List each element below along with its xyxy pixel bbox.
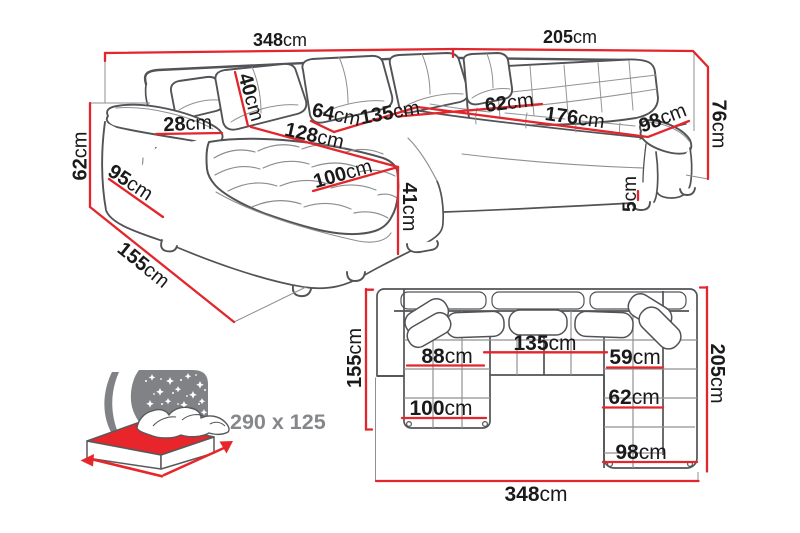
svg-text:76cm: 76cm (708, 100, 730, 149)
svg-text:205cm: 205cm (706, 343, 728, 403)
svg-text:100cm: 100cm (409, 397, 472, 420)
svg-text:98cm: 98cm (615, 441, 666, 464)
svg-text:155cm: 155cm (344, 328, 366, 388)
svg-text:348cm: 348cm (253, 30, 307, 50)
svg-text:205cm: 205cm (543, 27, 597, 47)
svg-text:41cm: 41cm (398, 183, 420, 232)
svg-text:28cm: 28cm (163, 112, 213, 137)
svg-text:290 x 125: 290 x 125 (230, 410, 326, 434)
svg-text:62cm: 62cm (70, 132, 92, 181)
svg-text:5cm: 5cm (620, 176, 641, 212)
svg-text:59cm: 59cm (609, 346, 660, 369)
svg-text:62cm: 62cm (608, 386, 659, 409)
svg-text:88cm: 88cm (421, 345, 472, 368)
svg-text:348cm: 348cm (504, 483, 567, 506)
svg-text:135cm: 135cm (513, 332, 576, 355)
